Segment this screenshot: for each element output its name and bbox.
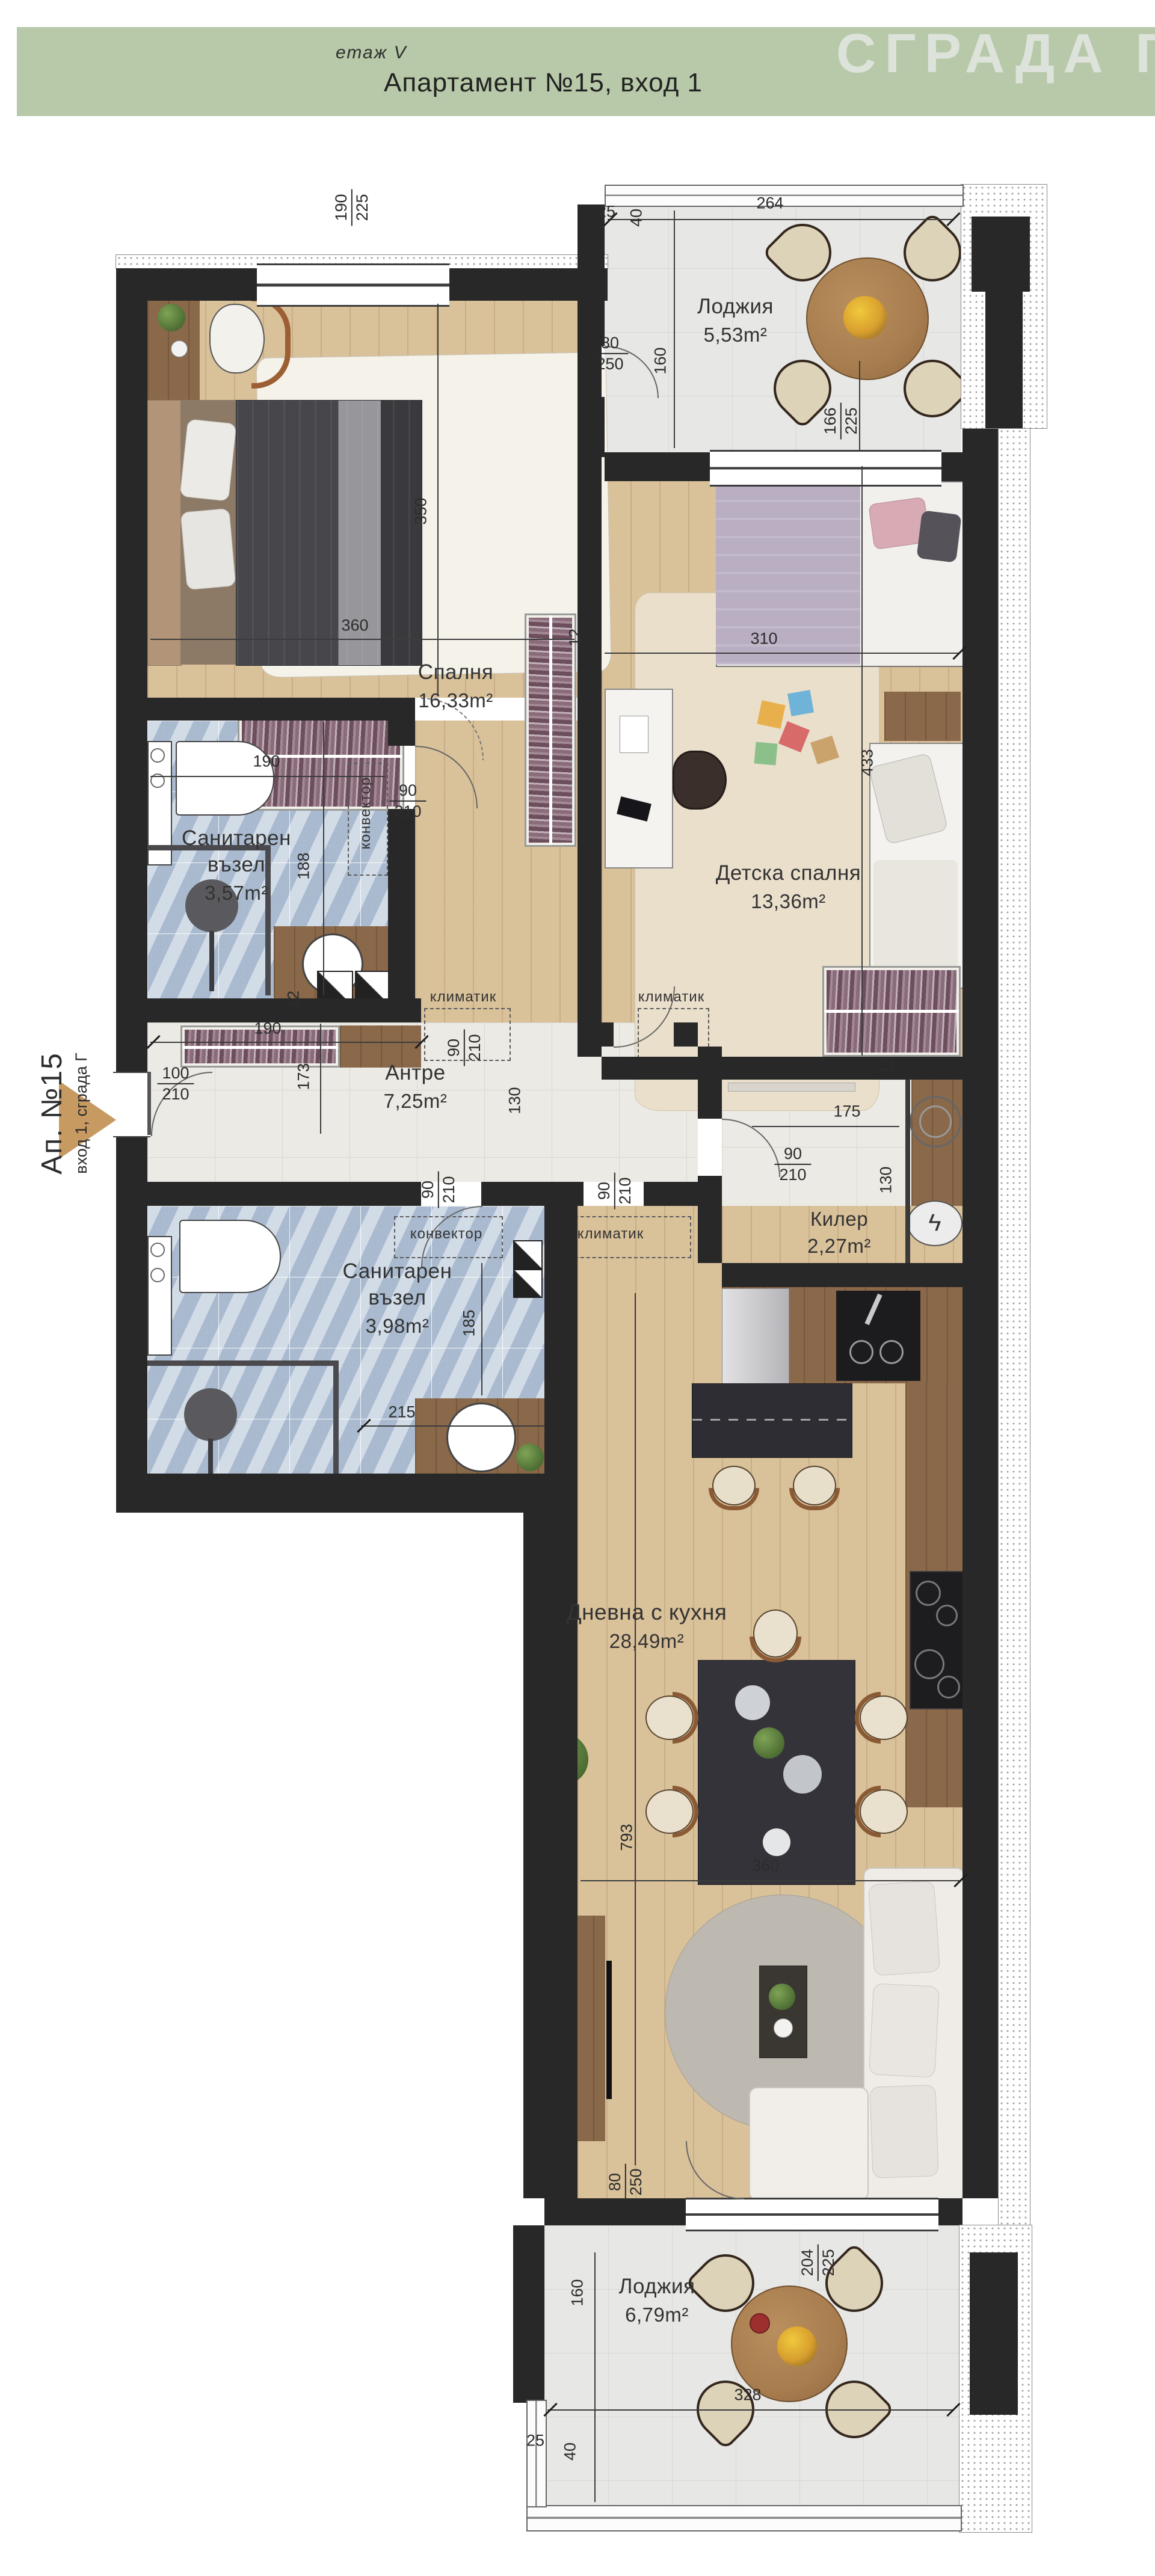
wall [577,301,602,1057]
wall [674,1022,698,1047]
pantry-shelf [728,1083,855,1092]
kids-wardrobe [822,966,961,1057]
bar-stool [712,1466,756,1505]
kitchen-island [692,1383,852,1458]
tv [606,1961,612,2099]
kids-desk-papers [620,716,648,753]
dim-label: 204225 [799,2244,837,2281]
wall [388,809,415,998]
dim-line [361,1425,544,1427]
shower-wall [333,1360,339,1474]
burner [916,1581,941,1606]
burner [936,1605,958,1626]
wall [577,1022,614,1047]
entrance-door-opening [113,1072,150,1137]
toy-block [754,742,777,765]
bath2-sink [446,1403,516,1472]
washer-dial [150,1243,165,1257]
counter-plant [516,1443,544,1471]
electrical-panel: ϟ [907,1200,962,1246]
dim-label: 80250 [606,2163,645,2200]
dining-chair [645,1695,694,1740]
wall [388,721,415,746]
dim-line [320,1024,321,1134]
wall [698,1176,722,1263]
dim-label: 793 [619,1824,635,1851]
dim-label: 90210 [774,1145,811,1184]
kids-window [710,450,941,487]
dim-line [752,1126,899,1127]
dim-label: 12 [879,1057,896,1075]
dim-label: 80250 [591,334,628,373]
dim-label: 40 [562,2442,579,2461]
dim-label: 160 [653,347,669,374]
washer-dial [150,1268,165,1282]
flower-bouquet [777,2326,817,2366]
wall [698,1047,722,1119]
wall [513,2225,544,2403]
dim-label: 130 [507,1087,523,1114]
dim-label: 166225 [822,402,860,439]
bed-blanket [236,400,422,666]
shower-head [184,1388,237,1441]
wall [116,268,147,1513]
living-window [686,2198,938,2231]
coffee-table [759,1966,807,2058]
wall [116,1474,577,1513]
sink-bowl [849,1340,873,1364]
kids-nightstand [884,692,961,741]
room-label-kids: Детска спалня13,36m² [673,860,904,914]
dining-chair [645,1789,694,1834]
dim-label: 12 [567,629,584,647]
wall [481,1182,584,1206]
room-label-bath2: Санитарен възел3,98m² [318,1258,477,1338]
room-label-living: Дневна с кухня28,49m² [541,1599,752,1654]
sink-bowl [879,1340,904,1364]
wall [962,428,999,2198]
dim-line [635,1293,636,2165]
vase [774,2018,793,2038]
room-label-loggia-bottom: Лоджия6,79m² [585,2273,729,2327]
room-label-hall: Антре7,25m² [354,1060,477,1113]
washer-dial [150,748,165,763]
convector-label: конвектор [410,1226,482,1243]
room-label-pantry: Килер2,27m² [776,1207,902,1259]
dim-line [481,1263,482,1395]
wall [602,1057,962,1080]
pillar [985,292,1023,428]
desk-plant [158,304,185,331]
dim-label: 12 [286,991,302,1009]
dim-label: 100210 [157,1065,194,1103]
dim-label: 130 [878,1166,895,1193]
insulation [999,428,1030,2225]
loggia-railing [526,2505,962,2531]
fridge [722,1288,789,1385]
coffee-table-plant [769,1984,795,2010]
pantry-washer-drum [919,1105,952,1138]
dim-line [150,776,385,777]
coffee-cup [750,2313,770,2334]
floor-label: етаж V [336,43,407,63]
pillar [972,217,1030,292]
dim-label: 360 [341,618,368,634]
dim-label: 350 [413,497,430,524]
bed-pillow [180,508,236,591]
ac-label: климатик [430,989,496,1006]
bedroom-window [257,263,449,307]
dim-label: 190225 [333,189,371,226]
toilet [179,1220,281,1293]
shower-wall [147,1360,339,1366]
wall [644,1182,698,1206]
dim-label: 190 [254,1021,281,1037]
dim-label: 215 [388,1404,415,1421]
kids-bed-blanket [716,481,860,665]
shower-arm [208,1439,213,1474]
dim-label: 160 [570,2279,586,2306]
wall [116,1182,421,1206]
apartment-title: Апартамент №15, вход 1 [384,68,703,98]
building-watermark: СГРАДА Г [836,27,1155,85]
dim-line [547,2409,953,2411]
sofa-cushion [869,2085,938,2178]
toy-block [787,690,814,716]
vent-shaft [513,1269,543,1298]
dining-chair [753,1609,798,1658]
shower-arm [209,931,214,991]
dim-label: 173 [296,1063,312,1090]
flower-bouquet [843,296,887,339]
plate [783,1755,822,1794]
toy-block [757,700,785,728]
partition [905,1080,910,1263]
kids-chair [673,751,727,810]
ac-label: климатик [577,1226,644,1243]
dim-label: 90210 [389,782,426,820]
wall [722,1263,962,1287]
dim-line [581,1880,959,1881]
tv-cabinet [573,1916,605,2141]
dining-chair [860,1789,908,1834]
dim-label: 310 [750,631,777,647]
dim-line [323,722,324,995]
room-label-loggia-top: Лоджия5,53m² [659,294,812,347]
apartment-number-label: Ап. №15 [35,987,69,1240]
table-plant [753,1727,784,1759]
dim-label: 433 [860,749,876,776]
vent-shaft [513,1240,543,1269]
bar-stool [793,1466,836,1505]
room-label-bedroom: Спалня16,33m² [370,659,541,713]
dim-label: 90210 [419,1171,458,1208]
header-band: етаж V Апартамент №15, вход 1 СГРАДА Г [17,27,1155,116]
dim-line [608,219,953,220]
dining-chair [860,1695,908,1740]
dim-label: 175 [833,1104,860,1120]
pillar [970,2252,1018,2415]
bed-pillow [179,419,236,502]
floor-plan-page: етаж V Апартамент №15, вход 1 СГРАДА Г [0,0,1155,2576]
sofa-cushion [869,1983,940,2078]
tall-wardrobe [525,613,576,847]
burner [914,1649,944,1679]
dim-line [437,304,439,695]
plate [763,1828,790,1856]
ac-label: климатик [638,989,704,1006]
desk-lamp [171,340,188,357]
dim-label: 360 [752,1858,779,1874]
room-label-bath1: Санитарен възел3,57m² [155,825,318,905]
dim-label: 25 [597,204,615,220]
convector-label: конвектор [357,777,374,849]
sofa-cushion [868,1880,940,1976]
bed-headboard [147,400,182,666]
sofa-chaise [749,2087,869,2201]
wall [544,1206,577,1510]
dim-label: 264 [756,195,783,212]
dim-label: 328 [734,2387,761,2403]
entrance-door-leaf [147,1072,151,1135]
dim-line [605,653,959,654]
dim-label: 190 [253,754,280,770]
dim-label: 25 [526,2433,544,2449]
loggia-railing [605,185,964,207]
dim-label: 90210 [596,1172,634,1209]
dim-line [150,639,574,640]
entrance-side-label: Ап. №15 вход 1, сграда Г [35,987,91,1240]
burner [937,1676,960,1698]
entrance-building-label: вход 1, сграда Г [72,987,91,1240]
kids-pillow-dark [916,510,961,562]
plate [735,1685,770,1720]
dim-label: 40 [629,209,645,227]
dim-line [150,1042,421,1043]
